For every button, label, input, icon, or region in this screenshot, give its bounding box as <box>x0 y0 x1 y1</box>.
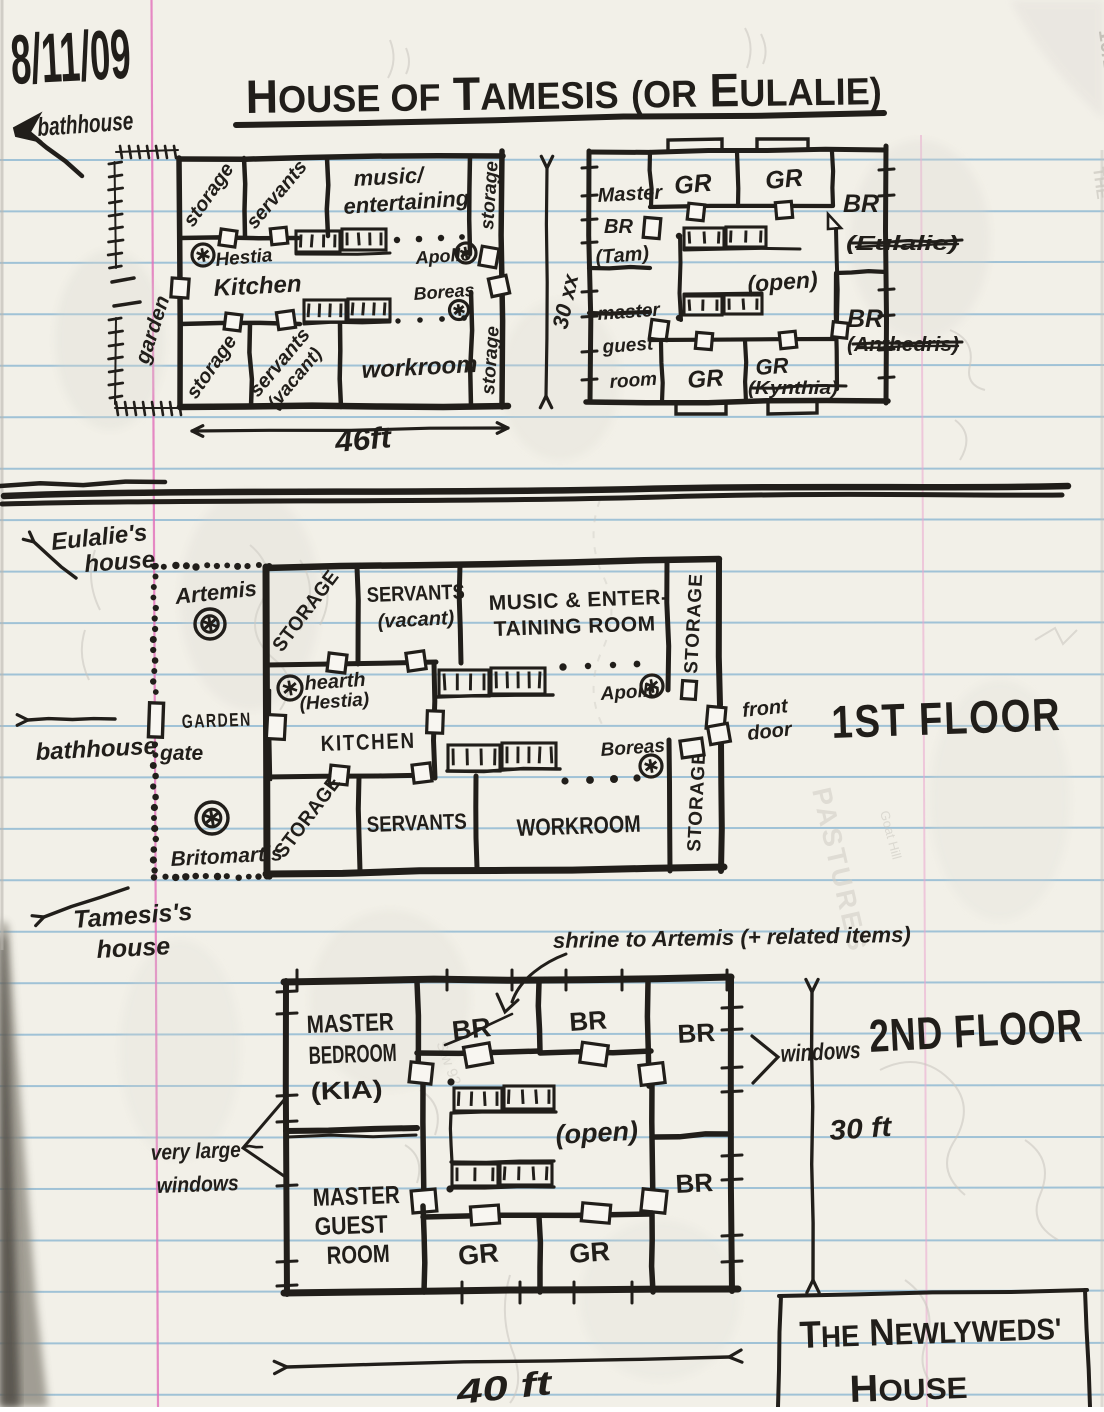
svg-text:very large: very large <box>150 1137 241 1165</box>
svg-text:Boreas: Boreas <box>413 280 475 304</box>
svg-text:MASTER: MASTER <box>306 1008 394 1039</box>
svg-text:(vacant): (vacant) <box>377 607 455 633</box>
svg-text:(Tam): (Tam) <box>595 242 651 269</box>
svg-text:house: house <box>84 546 156 578</box>
svg-text:GR: GR <box>687 364 725 393</box>
svg-text:KITCHEN: KITCHEN <box>320 728 416 756</box>
svg-text:BR: BR <box>843 190 879 218</box>
svg-text:30 ft: 30 ft <box>828 1111 894 1146</box>
svg-text:GR: GR <box>764 164 804 195</box>
svg-text:music/: music/ <box>353 162 427 191</box>
svg-text:BR: BR <box>568 1004 608 1037</box>
svg-text:SERVANTS: SERVANTS <box>366 581 465 607</box>
svg-text:Kitchen: Kitchen <box>213 270 302 302</box>
svg-text:house: house <box>96 932 171 964</box>
svg-text:Apollo: Apollo <box>414 244 472 268</box>
svg-text:(open): (open) <box>555 1116 639 1150</box>
svg-text:GR: GR <box>457 1238 500 1271</box>
svg-text:8/11/09: 8/11/09 <box>9 15 133 99</box>
svg-text:GARDEN: GARDEN <box>181 710 252 733</box>
svg-text:46ft: 46ft <box>333 421 395 459</box>
svg-text:SERVANTS: SERVANTS <box>366 809 467 837</box>
svg-text:(KIA): (KIA) <box>310 1076 383 1106</box>
svg-text:gate: gate <box>159 742 204 765</box>
svg-text:MASTER: MASTER <box>312 1181 400 1212</box>
svg-text:room: room <box>609 369 658 393</box>
svg-text:GR: GR <box>568 1236 610 1269</box>
svg-text:BEDROOM: BEDROOM <box>308 1039 397 1070</box>
svg-text:WORKROOM: WORKROOM <box>516 811 641 842</box>
svg-text:windows: windows <box>156 1170 239 1198</box>
svg-text:GR: GR <box>755 353 790 380</box>
svg-text:GUEST: GUEST <box>314 1210 388 1241</box>
svg-text:windows: windows <box>780 1037 861 1068</box>
svg-text:1ST FLOOR: 1ST FLOOR <box>831 688 1063 748</box>
svg-text:BR: BR <box>604 216 633 238</box>
svg-text:BR: BR <box>677 1017 716 1049</box>
svg-text:BR: BR <box>675 1167 714 1199</box>
svg-text:ROOM: ROOM <box>326 1240 390 1270</box>
svg-text:guest: guest <box>601 333 655 358</box>
svg-text:Master: Master <box>597 182 664 207</box>
svg-text:GR: GR <box>673 169 713 200</box>
svg-text:BR: BR <box>847 305 883 333</box>
